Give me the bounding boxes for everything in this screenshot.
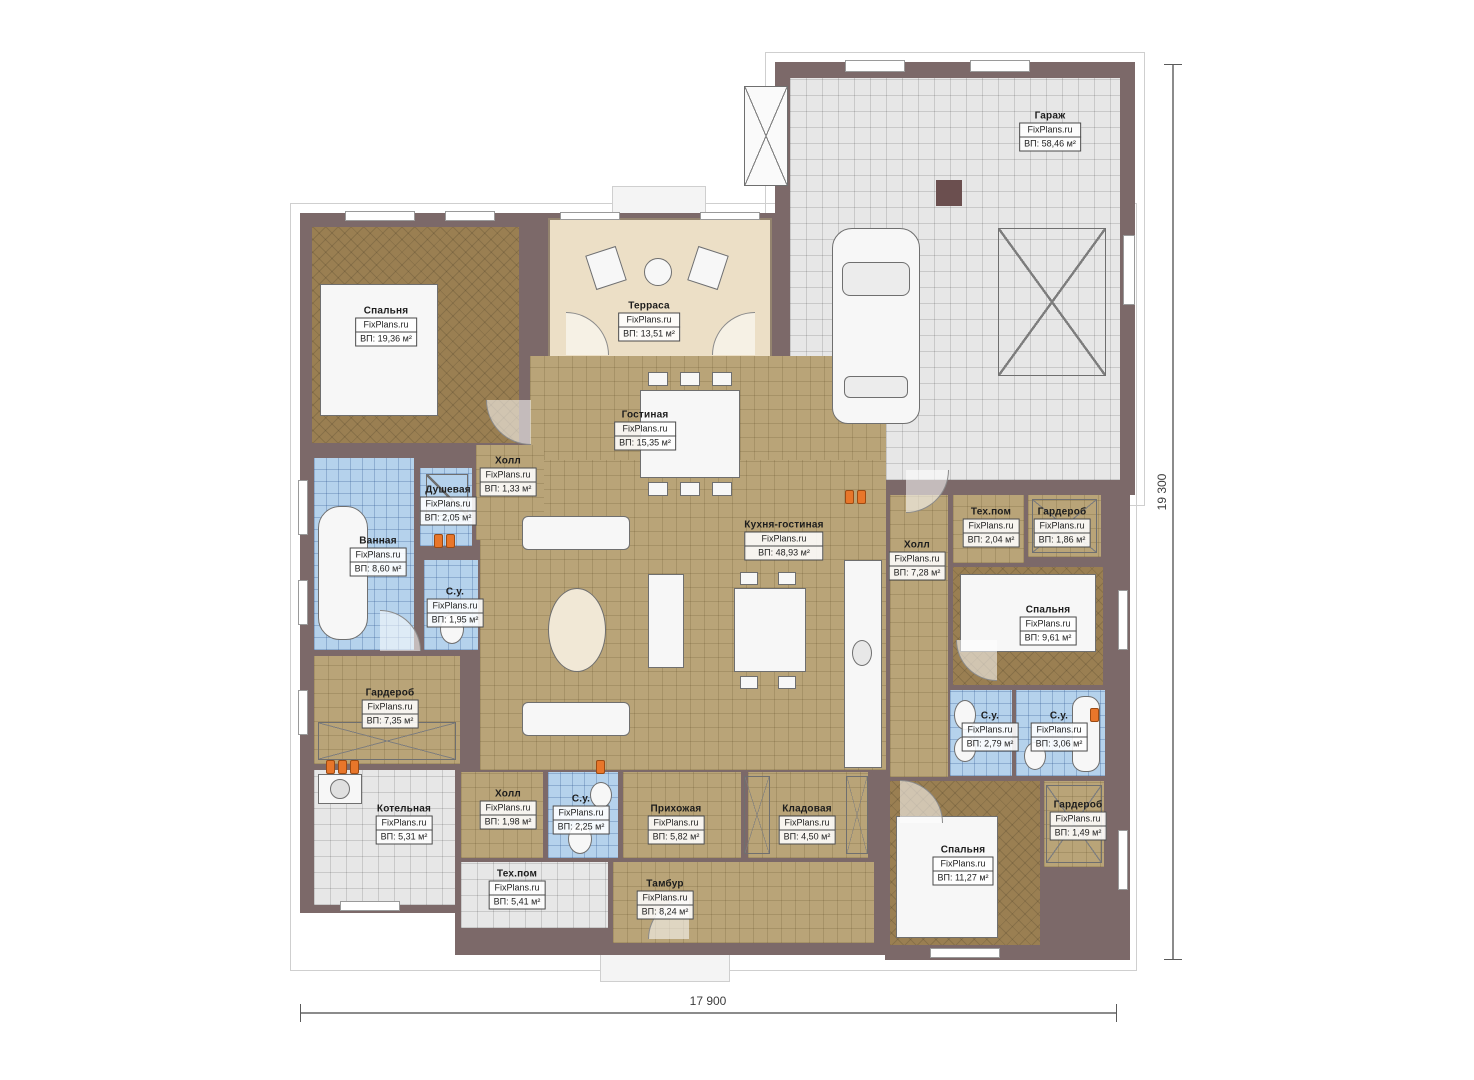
room-name: Тех.пом (489, 869, 546, 880)
label-wc-right1: С.у. FixPlans.ru ВП: 2,79 м² (962, 711, 1019, 752)
room-name: Ванная (350, 536, 407, 547)
watermark: FixPlans.ru (362, 700, 419, 715)
closet-storage (846, 776, 868, 854)
watermark: FixPlans.ru (1019, 123, 1081, 138)
tv-cabinet (648, 574, 684, 668)
window (340, 901, 400, 911)
radiator (326, 760, 359, 774)
watermark: FixPlans.ru (350, 548, 407, 563)
dimension-width: 17 900 (690, 994, 727, 1008)
terrace-table (644, 258, 672, 286)
room-name: Тамбур (637, 879, 694, 890)
label-wc-right2: С.у. FixPlans.ru ВП: 3,06 м² (1031, 711, 1088, 752)
watermark: FixPlans.ru (1020, 617, 1077, 632)
watermark: FixPlans.ru (427, 599, 484, 614)
room-hall-right (890, 495, 948, 777)
room-area: ВП: 3,06 м² (1031, 737, 1088, 752)
terrace-steps (612, 186, 706, 214)
label-wc-bottom: С.у. FixPlans.ru ВП: 2,25 м² (553, 794, 610, 835)
kitchen-chair (740, 676, 758, 689)
room-area: ВП: 4,50 м² (779, 830, 836, 845)
room-area: ВП: 48,93 м² (744, 546, 823, 561)
room-area: ВП: 58,46 м² (1019, 137, 1081, 152)
room-name: Спальня (1020, 605, 1077, 616)
watermark: FixPlans.ru (963, 519, 1020, 534)
window (345, 211, 415, 221)
watermark: FixPlans.ru (618, 313, 680, 328)
room-area: ВП: 1,95 м² (427, 613, 484, 628)
dimension-tick (1116, 1004, 1117, 1022)
label-storage: Кладовая FixPlans.ru ВП: 4,50 м² (779, 804, 836, 845)
label-wardrobe-left: Гардероб FixPlans.ru ВП: 7,35 м² (362, 688, 419, 729)
label-hall-small: Холл FixPlans.ru ВП: 1,33 м² (480, 456, 537, 497)
room-area: ВП: 11,27 м² (932, 871, 993, 886)
window (700, 212, 760, 220)
room-name: С.у. (962, 711, 1019, 722)
watermark: FixPlans.ru (932, 857, 993, 872)
radiator (845, 490, 866, 504)
dining-chair (648, 482, 668, 496)
window (298, 690, 308, 735)
label-bedroom-bottom: Спальня FixPlans.ru ВП: 11,27 м² (932, 845, 993, 886)
watermark: FixPlans.ru (614, 422, 676, 437)
room-area: ВП: 2,25 м² (553, 820, 610, 835)
room-name: Гардероб (1034, 507, 1091, 518)
dimension-line-height (1172, 64, 1174, 960)
room-name: Тех.пом (963, 507, 1020, 518)
window (930, 948, 1000, 958)
watermark: FixPlans.ru (779, 816, 836, 831)
dimension-tick (1164, 64, 1182, 65)
kitchen-chair (740, 572, 758, 585)
room-area: ВП: 1,49 м² (1050, 826, 1107, 841)
watermark: FixPlans.ru (637, 891, 694, 906)
label-bath: Ванная FixPlans.ru ВП: 8,60 м² (350, 536, 407, 577)
room-area: ВП: 2,79 м² (962, 737, 1019, 752)
garage-pillar (936, 180, 962, 206)
room-area: ВП: 5,41 м² (489, 895, 546, 910)
garage-porch (744, 86, 788, 186)
label-hall-right: Холл FixPlans.ru ВП: 7,28 м² (889, 540, 946, 581)
room-name: Холл (889, 540, 946, 551)
bed-topleft (320, 284, 438, 416)
watermark: FixPlans.ru (744, 532, 823, 547)
kitchen-sink (852, 640, 872, 666)
room-name: Кухня-гостиная (744, 520, 823, 531)
dining-chair (680, 482, 700, 496)
coffee-table (548, 588, 606, 672)
room-name: Гараж (1019, 111, 1081, 122)
label-bedroom-right: Спальня FixPlans.ru ВП: 9,61 м² (1020, 605, 1077, 646)
radiator (434, 534, 455, 548)
kitchen-chair (778, 676, 796, 689)
room-name: Гостиная (614, 410, 676, 421)
room-area: ВП: 1,33 м² (480, 482, 537, 497)
label-tech-right: Тех.пом FixPlans.ru ВП: 2,04 м² (963, 507, 1020, 548)
room-area: ВП: 5,82 м² (648, 830, 705, 845)
boiler-circle (330, 779, 350, 799)
room-name: Котельная (376, 804, 433, 815)
label-wc1: С.у. FixPlans.ru ВП: 1,95 м² (427, 587, 484, 628)
room-name: С.у. (1031, 711, 1088, 722)
label-living: Гостиная FixPlans.ru ВП: 15,35 м² (614, 410, 676, 451)
car-windshield (842, 262, 910, 296)
sofa-top (522, 516, 630, 550)
label-kitchen-living: Кухня-гостиная FixPlans.ru ВП: 48,93 м² (744, 520, 823, 561)
kitchen-chair (778, 572, 796, 585)
watermark: FixPlans.ru (962, 723, 1019, 738)
room-name: Холл (480, 789, 537, 800)
room-name: С.у. (553, 794, 610, 805)
sofa-bottom (522, 702, 630, 736)
window (970, 60, 1030, 72)
label-bedroom-topleft: Спальня FixPlans.ru ВП: 19,36 м² (355, 306, 417, 347)
dining-chair (712, 482, 732, 496)
closet-entry (744, 776, 770, 854)
window (1118, 590, 1128, 650)
window (560, 212, 620, 220)
room-name: Кладовая (779, 804, 836, 815)
watermark: FixPlans.ru (553, 806, 610, 821)
watermark: FixPlans.ru (1034, 519, 1091, 534)
watermark: FixPlans.ru (480, 801, 537, 816)
window (298, 480, 308, 535)
radiator (596, 760, 605, 774)
label-terrace: Терраса FixPlans.ru ВП: 13,51 м² (618, 301, 680, 342)
room-name: Холл (480, 456, 537, 467)
watermark: FixPlans.ru (1050, 812, 1107, 827)
room-area: ВП: 19,36 м² (355, 332, 417, 347)
room-area: ВП: 5,31 м² (376, 830, 433, 845)
window (845, 60, 905, 72)
label-boiler: Котельная FixPlans.ru ВП: 5,31 м² (376, 804, 433, 845)
car-rear-window (844, 376, 908, 398)
room-area: ВП: 15,35 м² (614, 436, 676, 451)
window (298, 580, 308, 625)
watermark: FixPlans.ru (648, 816, 705, 831)
garage-storage-zone (998, 228, 1106, 376)
watermark: FixPlans.ru (376, 816, 433, 831)
floor-plan: Гараж FixPlans.ru ВП: 58,46 м² Спальня F… (0, 0, 1474, 1080)
room-name: Прихожая (648, 804, 705, 815)
room-area: ВП: 7,35 м² (362, 714, 419, 729)
room-area: ВП: 7,28 м² (889, 566, 946, 581)
room-area: ВП: 9,61 м² (1020, 631, 1077, 646)
room-area: ВП: 13,51 м² (618, 327, 680, 342)
room-area: ВП: 8,60 м² (350, 562, 407, 577)
watermark: FixPlans.ru (420, 497, 477, 512)
room-name: Спальня (932, 845, 993, 856)
room-area: ВП: 2,04 м² (963, 533, 1020, 548)
kitchen-table (734, 588, 806, 672)
watermark: FixPlans.ru (889, 552, 946, 567)
room-name: Гардероб (362, 688, 419, 699)
room-name: Спальня (355, 306, 417, 317)
label-hall-bottom: Холл FixPlans.ru ВП: 1,98 м² (480, 789, 537, 830)
room-area: ВП: 1,98 м² (480, 815, 537, 830)
label-entry-hall: Прихожая FixPlans.ru ВП: 5,82 м² (648, 804, 705, 845)
label-wardrobe-right-top: Гардероб FixPlans.ru ВП: 1,86 м² (1034, 507, 1091, 548)
watermark: FixPlans.ru (1031, 723, 1088, 738)
dimension-tick (1164, 959, 1182, 960)
watermark: FixPlans.ru (480, 468, 537, 483)
room-name: С.у. (427, 587, 484, 598)
window (445, 211, 495, 221)
dimension-tick (300, 1004, 301, 1022)
label-vestibule: Тамбур FixPlans.ru ВП: 8,24 м² (637, 879, 694, 920)
dining-chair (648, 372, 668, 386)
radiator (1090, 708, 1099, 722)
room-name: Душевая (420, 485, 477, 496)
room-name: Терраса (618, 301, 680, 312)
dining-chair (712, 372, 732, 386)
dimension-height: 19 300 (1155, 474, 1169, 511)
window (1123, 235, 1135, 305)
watermark: FixPlans.ru (489, 881, 546, 896)
room-name: Гардероб (1050, 800, 1107, 811)
room-area: ВП: 1,86 м² (1034, 533, 1091, 548)
label-wardrobe-bottom-right: Гардероб FixPlans.ru ВП: 1,49 м² (1050, 800, 1107, 841)
room-area: ВП: 2,05 м² (420, 511, 477, 526)
dimension-line-width (300, 1012, 1117, 1014)
room-area: ВП: 8,24 м² (637, 905, 694, 920)
dining-chair (680, 372, 700, 386)
label-shower: Душевая FixPlans.ru ВП: 2,05 м² (420, 485, 477, 526)
window (1118, 830, 1128, 890)
label-garage: Гараж FixPlans.ru ВП: 58,46 м² (1019, 111, 1081, 152)
watermark: FixPlans.ru (355, 318, 417, 333)
label-tech-bottom: Тех.пом FixPlans.ru ВП: 5,41 м² (489, 869, 546, 910)
